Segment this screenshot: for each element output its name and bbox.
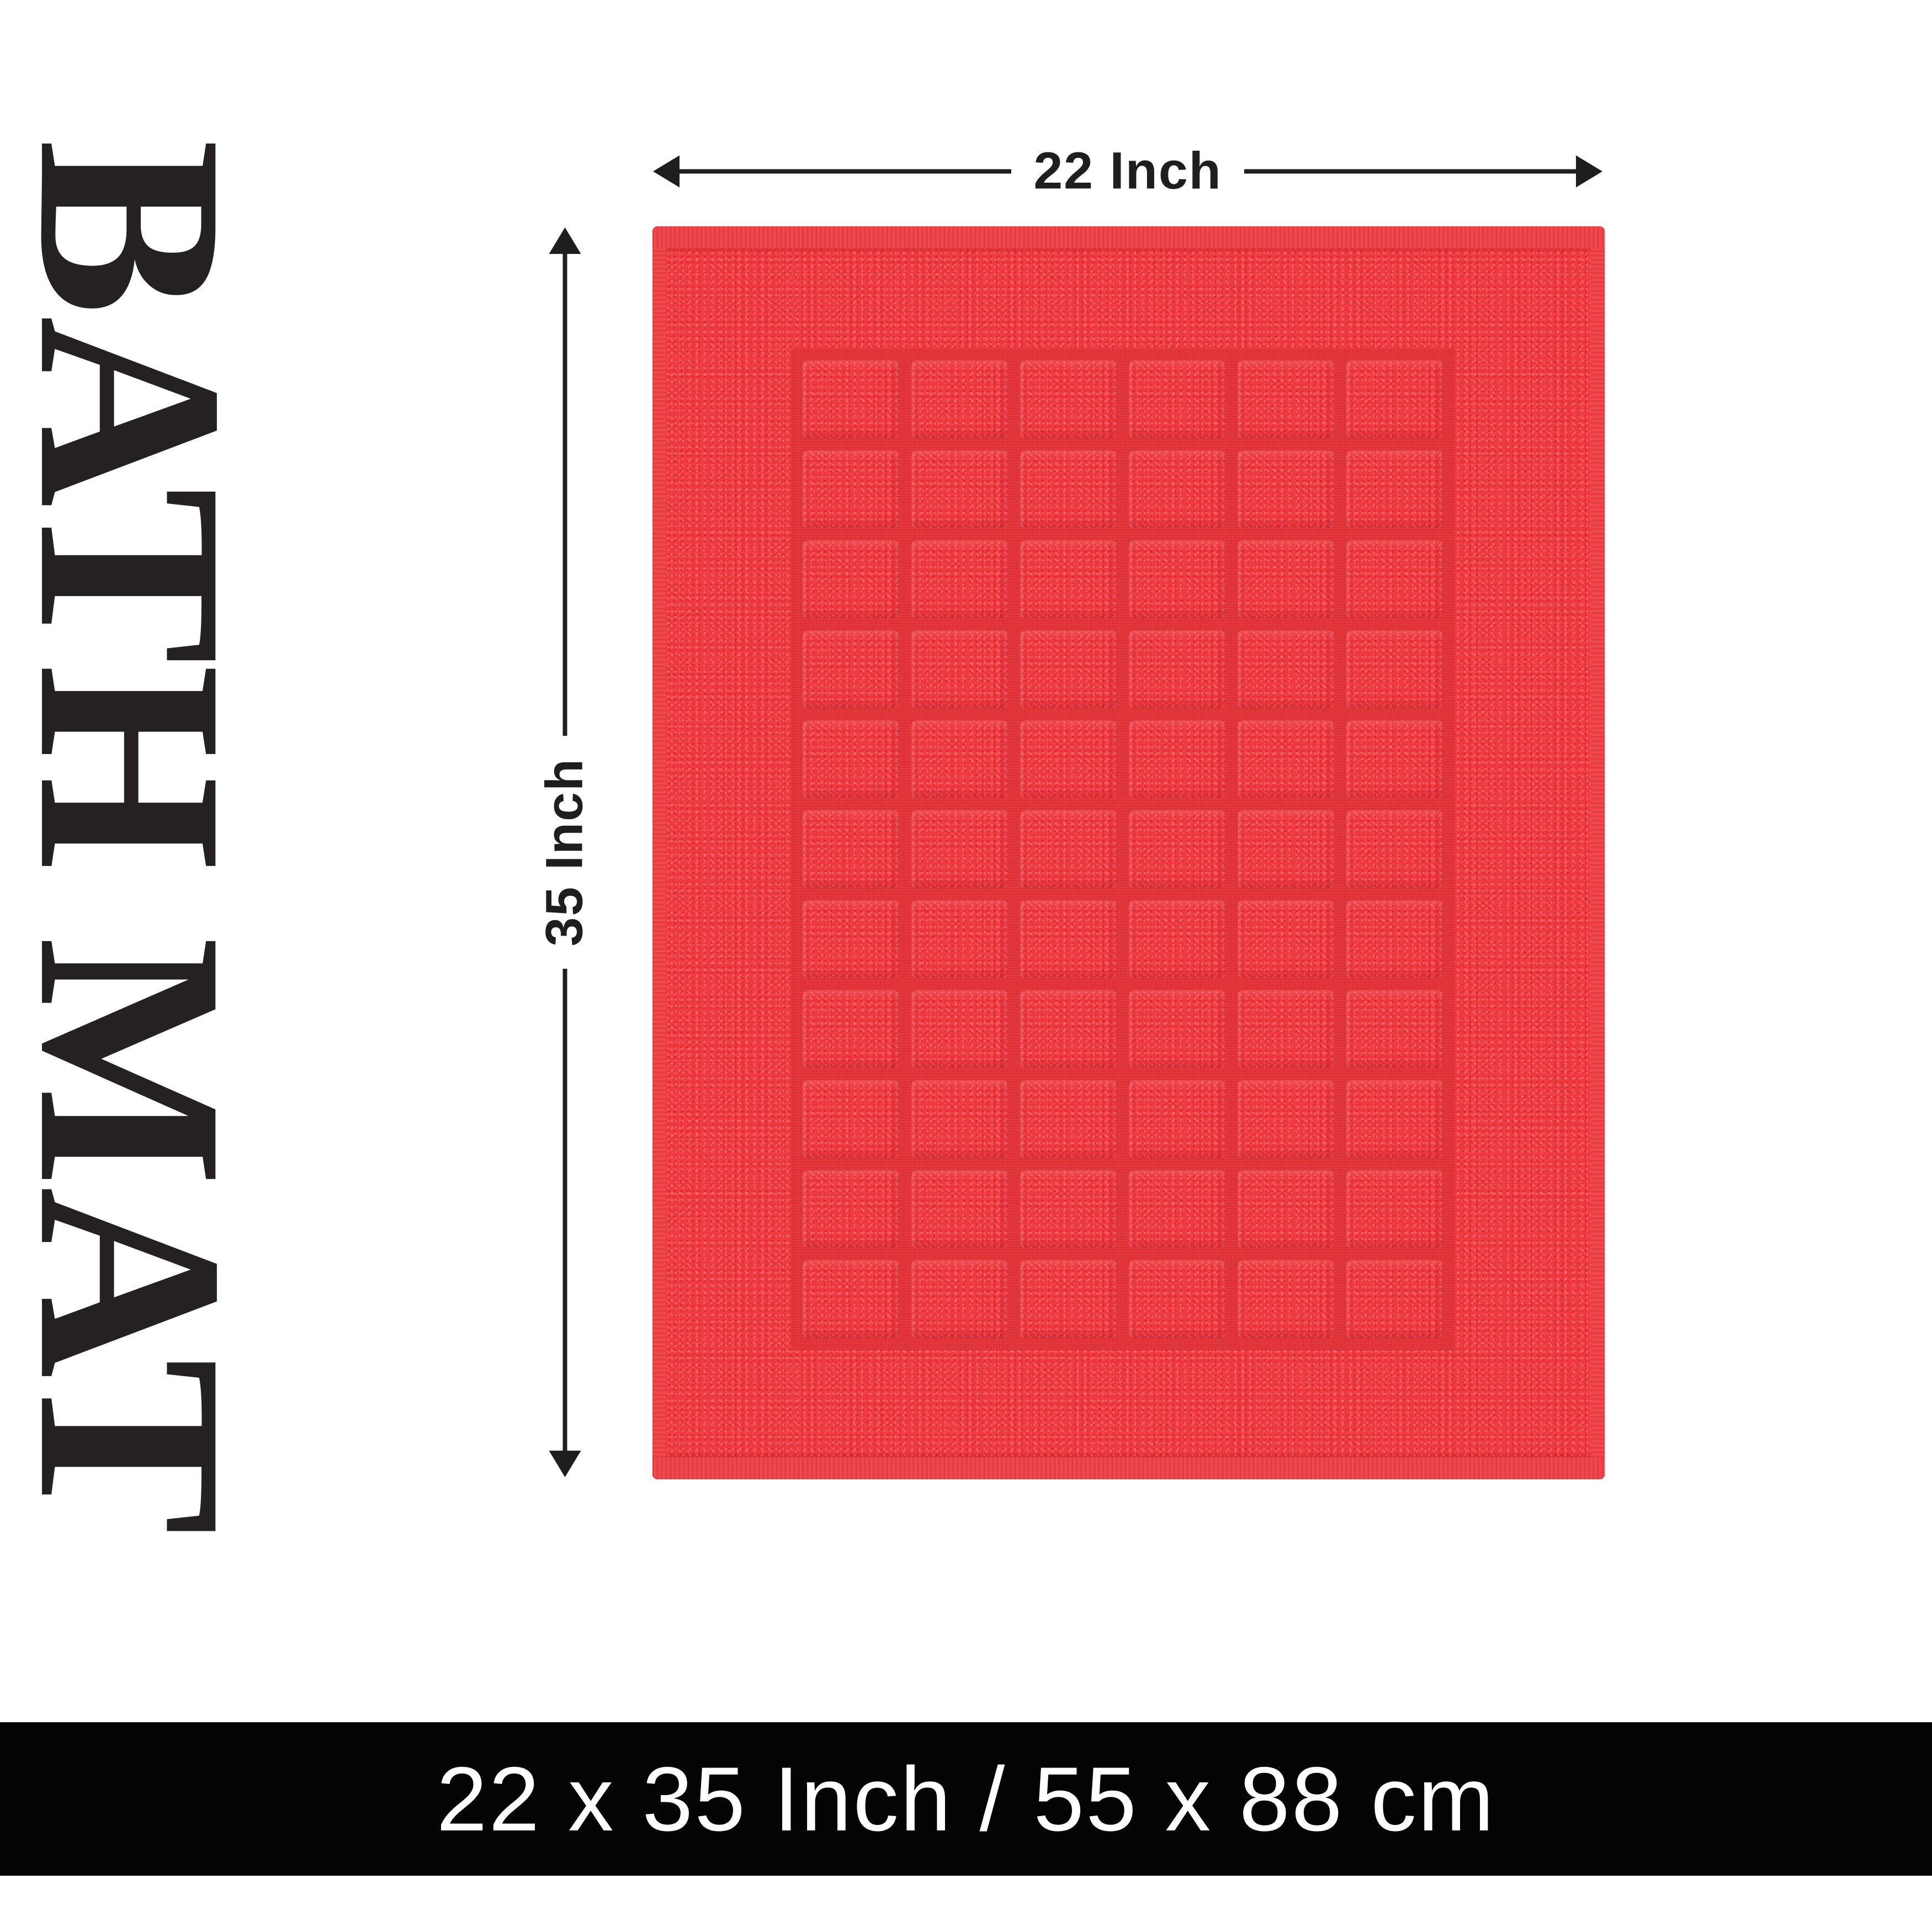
size-banner: 22 x 35 Inch / 55 x 88 cm: [0, 1722, 1932, 1876]
mat-grid-cell: [1020, 630, 1117, 708]
bath-mat-photo: [652, 226, 1605, 1479]
mat-grid-cell: [1238, 810, 1334, 888]
mat-grid-cell: [911, 810, 1008, 888]
mat-hem-top: [652, 226, 1605, 248]
mat-grid-cell: [1129, 720, 1225, 798]
mat-grid-cell: [803, 360, 899, 438]
mat-grid-cell: [1346, 1260, 1443, 1338]
mat-grid-cell: [911, 450, 1008, 528]
mat-grid-cell: [1020, 900, 1117, 978]
vertical-product-title: BATH MAT: [32, 139, 231, 1630]
mat-grid-cell: [1129, 1170, 1225, 1248]
mat-grid-cell: [1129, 630, 1225, 708]
mat-grid-cell: [1238, 360, 1334, 438]
mat-grid-cell: [1020, 1170, 1117, 1248]
mat-grid-cell: [1346, 810, 1443, 888]
mat-grid-cell: [803, 900, 899, 978]
mat-grid-cell: [1020, 360, 1117, 438]
mat-grid-cell: [1346, 360, 1443, 438]
mat-grid-cell: [1238, 900, 1334, 978]
arrowhead-down-icon: [549, 1451, 581, 1477]
mat-grid-cell: [1346, 630, 1443, 708]
mat-grid-cell: [1020, 720, 1117, 798]
mat-grid-cell: [1020, 540, 1117, 618]
mat-grid-cell: [1238, 990, 1334, 1068]
mat-grid-cell: [1238, 1260, 1334, 1338]
mat-grid-cell: [911, 1260, 1008, 1338]
mat-grid-cell: [1020, 1260, 1117, 1338]
mat-selvage-left: [652, 248, 666, 1457]
mat-grid-cell: [911, 540, 1008, 618]
mat-grid-cell: [1020, 990, 1117, 1068]
size-banner-text: 22 x 35 Inch / 55 x 88 cm: [437, 1754, 1496, 1845]
mat-grid-cell: [1129, 810, 1225, 888]
width-dimension-arrow: 22 Inch: [653, 145, 1602, 198]
mat-grid-cell: [1346, 450, 1443, 528]
mat-grid-cell: [1346, 1080, 1443, 1158]
height-dimension-label: 35 Inch: [539, 758, 591, 946]
mat-grid-cell: [911, 900, 1008, 978]
mat-grid-pattern: [790, 348, 1455, 1350]
arrowhead-left-icon: [653, 155, 680, 187]
mat-grid-cell: [1346, 540, 1443, 618]
mat-grid-cell: [911, 360, 1008, 438]
mat-grid-cell: [911, 990, 1008, 1068]
mat-grid-cell: [1238, 1080, 1334, 1158]
mat-grid-cell: [1346, 900, 1443, 978]
mat-grid-cell: [803, 630, 899, 708]
mat-grid-cell: [803, 1260, 899, 1338]
mat-grid-cell: [803, 720, 899, 798]
mat-grid-cell: [911, 630, 1008, 708]
mat-grid-cell: [1238, 450, 1334, 528]
mat-grid-cell: [1129, 990, 1225, 1068]
mat-grid-cell: [1129, 450, 1225, 528]
mat-grid-cell: [1346, 720, 1443, 798]
mat-grid-cell: [911, 1080, 1008, 1158]
mat-grid-cell: [1346, 1170, 1443, 1248]
arrowhead-up-icon: [549, 227, 581, 254]
mat-grid-cell: [803, 990, 899, 1068]
mat-grid-cell: [1129, 1260, 1225, 1338]
mat-grid-cell: [1129, 540, 1225, 618]
mat-grid-cell: [1129, 900, 1225, 978]
mat-grid-cell: [803, 450, 899, 528]
mat-grid-cell: [1238, 720, 1334, 798]
mat-grid-cell: [1129, 1080, 1225, 1158]
mat-hem-bottom: [652, 1457, 1605, 1479]
mat-grid-cell: [911, 1170, 1008, 1248]
arrow-line: [562, 969, 567, 1451]
mat-grid-cell: [1020, 450, 1117, 528]
mat-grid-cell: [1238, 1170, 1334, 1248]
mat-grid-cell: [803, 1170, 899, 1248]
mat-grid-cell: [803, 1080, 899, 1158]
height-dimension-arrow: 35 Inch: [539, 227, 591, 1477]
arrow-line: [1244, 169, 1576, 173]
arrow-line: [562, 254, 567, 736]
mat-grid-cell: [911, 720, 1008, 798]
width-dimension-label: 22 Inch: [1033, 145, 1222, 198]
mat-grid-cell: [1020, 1080, 1117, 1158]
mat-selvage-right: [1591, 248, 1605, 1457]
arrowhead-right-icon: [1576, 155, 1602, 187]
mat-grid-cell: [1238, 630, 1334, 708]
arrow-line: [680, 169, 1011, 173]
mat-grid-cell: [1020, 810, 1117, 888]
mat-grid-cell: [803, 810, 899, 888]
mat-grid-cell: [1346, 990, 1443, 1068]
mat-grid-cell: [1129, 360, 1225, 438]
mat-grid-cell: [1238, 540, 1334, 618]
mat-grid-cell: [803, 540, 899, 618]
